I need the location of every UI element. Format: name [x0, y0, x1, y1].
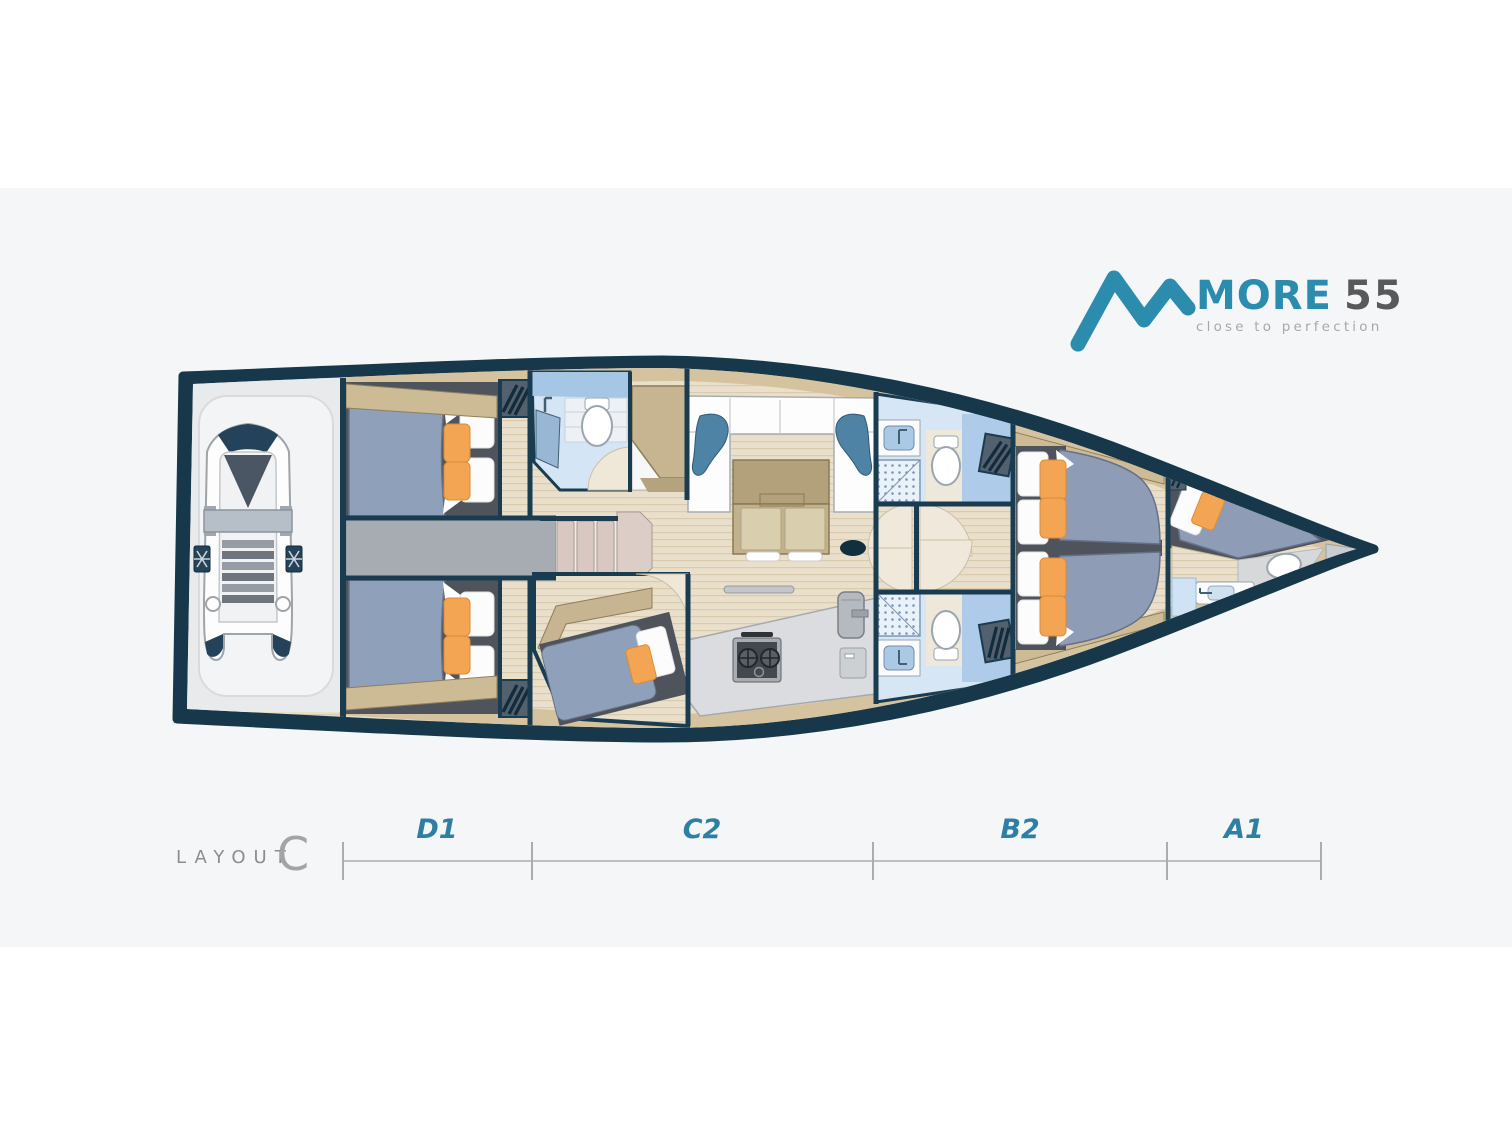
dinghy-oarlock-starboard: [286, 546, 302, 572]
galley-fridge: [840, 648, 866, 678]
brand-name: MORE: [1196, 273, 1332, 319]
wardrobe-step: [640, 478, 687, 492]
orange-cushion: [1040, 498, 1066, 538]
stair-step: [597, 521, 614, 575]
brand-model: 55: [1344, 273, 1404, 319]
tile-panel: [1172, 578, 1196, 616]
stove-handle: [741, 632, 773, 637]
seat-cushion: [785, 508, 825, 550]
sink: [878, 420, 920, 456]
mid-wardrobe: [632, 386, 687, 492]
dinghy-oarlock-port: [194, 546, 210, 572]
sink: [878, 640, 920, 676]
toilet: [582, 406, 612, 446]
section-label-d1: D1: [416, 814, 457, 845]
shower: [878, 594, 920, 636]
toilet: [932, 447, 960, 485]
wardrobe-hatch: [499, 680, 531, 717]
stair-step: [577, 521, 594, 575]
page: MORE 55 close to perfection: [0, 0, 1512, 1134]
bathroom-locker: [532, 372, 630, 398]
layout-variant: C: [277, 827, 309, 881]
section-label-b2: B2: [1000, 814, 1039, 845]
footrest: [746, 552, 780, 561]
yacht-floorplan: MORE 55 close to perfection: [0, 0, 1512, 1134]
section-label-a1: A1: [1222, 814, 1264, 845]
cabin-walkway: [499, 578, 531, 678]
orange-cushion: [444, 462, 470, 500]
stair-step: [557, 521, 574, 575]
dinghy-drain: [206, 597, 220, 611]
dinghy-bench: [204, 510, 292, 532]
aft-cabin-starboard: [346, 578, 531, 717]
stove: [733, 632, 781, 682]
orange-cushion: [444, 636, 470, 674]
aft-corridor: [346, 520, 556, 576]
orange-cushion: [1040, 596, 1066, 636]
cabin-walkway: [499, 418, 531, 518]
aft-cabin-port: [346, 380, 531, 518]
stair-landing: [617, 512, 652, 580]
mast-post: [840, 540, 866, 556]
corridor-wall: [914, 504, 919, 592]
section-label-c2: C2: [683, 814, 722, 845]
orange-cushion: [1040, 460, 1066, 500]
salon-table: [733, 460, 829, 561]
orange-cushion: [1040, 558, 1066, 598]
wardrobe-hatch: [979, 620, 1015, 663]
companionway-stairs: [540, 512, 652, 580]
dinghy: [194, 424, 302, 660]
mid-head-bathroom: [532, 372, 630, 490]
wardrobe-hatch: [979, 434, 1015, 477]
handrail: [724, 586, 794, 593]
orange-cushion: [444, 598, 470, 636]
galley-sink: [838, 592, 868, 638]
stern-garage: [186, 378, 343, 712]
shower: [878, 460, 920, 502]
toilet: [932, 611, 960, 649]
seat-cushion: [741, 508, 781, 550]
wardrobe-hatch: [499, 380, 531, 417]
shower-glass: [536, 410, 560, 468]
footrest: [788, 552, 822, 561]
brand-tagline: close to perfection: [1196, 319, 1382, 335]
mid-single-cabin: [534, 574, 690, 726]
dinghy-drain: [276, 597, 290, 611]
orange-cushion: [444, 424, 470, 462]
